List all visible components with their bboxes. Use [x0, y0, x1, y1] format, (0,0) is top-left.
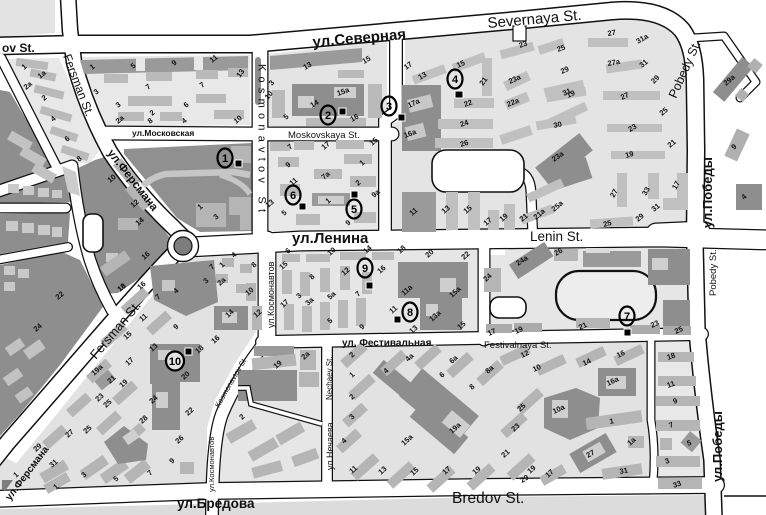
svg-text:8: 8: [407, 307, 413, 319]
svg-text:ул.Космонавтов: ул.Космонавтов: [266, 261, 276, 328]
svg-text:Moskovskaya St.: Moskovskaya St.: [288, 130, 360, 141]
svg-text:27: 27: [607, 28, 617, 38]
svg-text:7: 7: [624, 311, 630, 323]
svg-text:Lenin St.: Lenin St.: [530, 229, 583, 244]
svg-text:3: 3: [386, 101, 392, 113]
svg-text:4: 4: [452, 74, 459, 86]
svg-text:10: 10: [169, 356, 181, 368]
svg-text:Bredov St.: Bredov St.: [452, 490, 524, 507]
svg-text:ул.Московская: ул.Московская: [132, 128, 194, 138]
svg-text:ул.Космонавтов: ул.Космонавтов: [207, 437, 216, 492]
svg-text:Pobedy St.: Pobedy St.: [708, 250, 719, 296]
svg-text:ул.Бредова: ул.Бредова: [177, 496, 255, 511]
svg-text:5: 5: [351, 204, 357, 216]
svg-text:1: 1: [222, 153, 228, 165]
svg-text:ул. Фестивальная: ул. Фестивальная: [342, 338, 432, 349]
svg-text:Nechaev St.: Nechaev St.: [325, 356, 334, 400]
svg-text:Festivalnaya St.: Festivalnaya St.: [484, 340, 552, 351]
svg-text:ov St.: ov St.: [2, 41, 35, 55]
svg-text:31: 31: [619, 466, 629, 476]
svg-text:ул.Нечаева: ул.Нечаева: [325, 422, 335, 470]
svg-text:2: 2: [325, 110, 331, 122]
svg-text:ул.Победы: ул.Победы: [710, 411, 725, 482]
svg-text:9: 9: [362, 263, 368, 275]
svg-text:ул.Ленина: ул.Ленина: [292, 230, 369, 247]
svg-text:ул.Победы: ул.Победы: [700, 157, 715, 228]
svg-text:6: 6: [290, 190, 296, 202]
